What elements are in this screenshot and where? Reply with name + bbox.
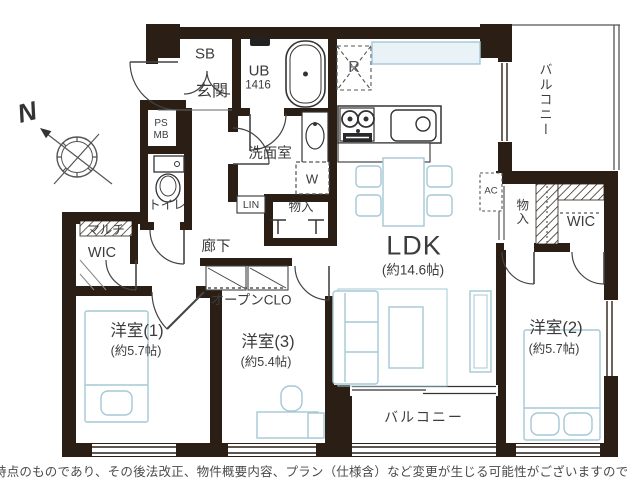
label-washer: W — [306, 173, 318, 186]
label-bedroom1-size: (約5.7帖) — [111, 345, 162, 358]
desk-bedroom3 — [257, 386, 324, 438]
label-bedroom1: 洋室(1) — [110, 323, 163, 340]
toilet-icon — [154, 156, 184, 202]
label-corridor: 廊下 — [202, 240, 231, 255]
label-storage-east: 物入 — [515, 199, 528, 226]
label-wic-east: WIC — [567, 215, 595, 230]
floorplan-image: N SB 玄関 UB 1416 R 洗面室 W PS MB トイレ マルチ WI… — [0, 0, 628, 480]
label-meter-box: MB — [154, 131, 169, 141]
label-open-closet: オープンCLO — [211, 293, 292, 307]
dining-set — [356, 158, 452, 226]
label-ac-space: AC — [484, 186, 497, 196]
label-multi-wic-line2: WIC — [88, 246, 116, 261]
label-entrance: 玄関 — [196, 84, 228, 100]
tv-board — [470, 291, 491, 372]
washbasin-icon — [302, 112, 328, 164]
compass-icon — [40, 128, 112, 184]
label-bedroom2-size: (約5.7帖) — [529, 343, 580, 356]
label-ldk: LDK — [386, 233, 442, 260]
label-toilet: トイレ — [148, 199, 186, 212]
kitchen-counter — [338, 106, 441, 162]
label-pipe-space: PS — [154, 119, 167, 129]
coffee-table — [389, 307, 423, 368]
label-unit-bath-size: 1416 — [245, 80, 271, 92]
kitchen-cabinet — [372, 42, 480, 64]
label-fridge-space: R — [348, 60, 360, 76]
label-shoebox: SB — [195, 47, 215, 62]
label-bedroom3-size: (約5.4帖) — [241, 356, 292, 369]
label-bedroom2: 洋室(2) — [529, 320, 582, 337]
label-washroom: 洗面室 — [248, 147, 292, 162]
label-balcony-south: バルコニー — [384, 410, 464, 424]
label-unit-bath: UB — [249, 64, 270, 79]
label-multi-wic-line1: マルチ — [87, 224, 125, 237]
label-bedroom3: 洋室(3) — [241, 334, 294, 351]
bathtub-icon — [286, 41, 325, 107]
label-storage-hall: 物入 — [288, 201, 313, 214]
disclaimer-text: 時点のものであり、その後法改正、物件概要内容、プラン（仕様含）など変更が生じる可… — [0, 466, 628, 479]
label-ldk-size: (約14.6帖) — [382, 263, 444, 277]
label-balcony-east: バルコニー — [539, 63, 552, 138]
label-linen: LIN — [243, 200, 259, 211]
balcony-outline — [512, 25, 620, 170]
sofa — [333, 291, 378, 384]
